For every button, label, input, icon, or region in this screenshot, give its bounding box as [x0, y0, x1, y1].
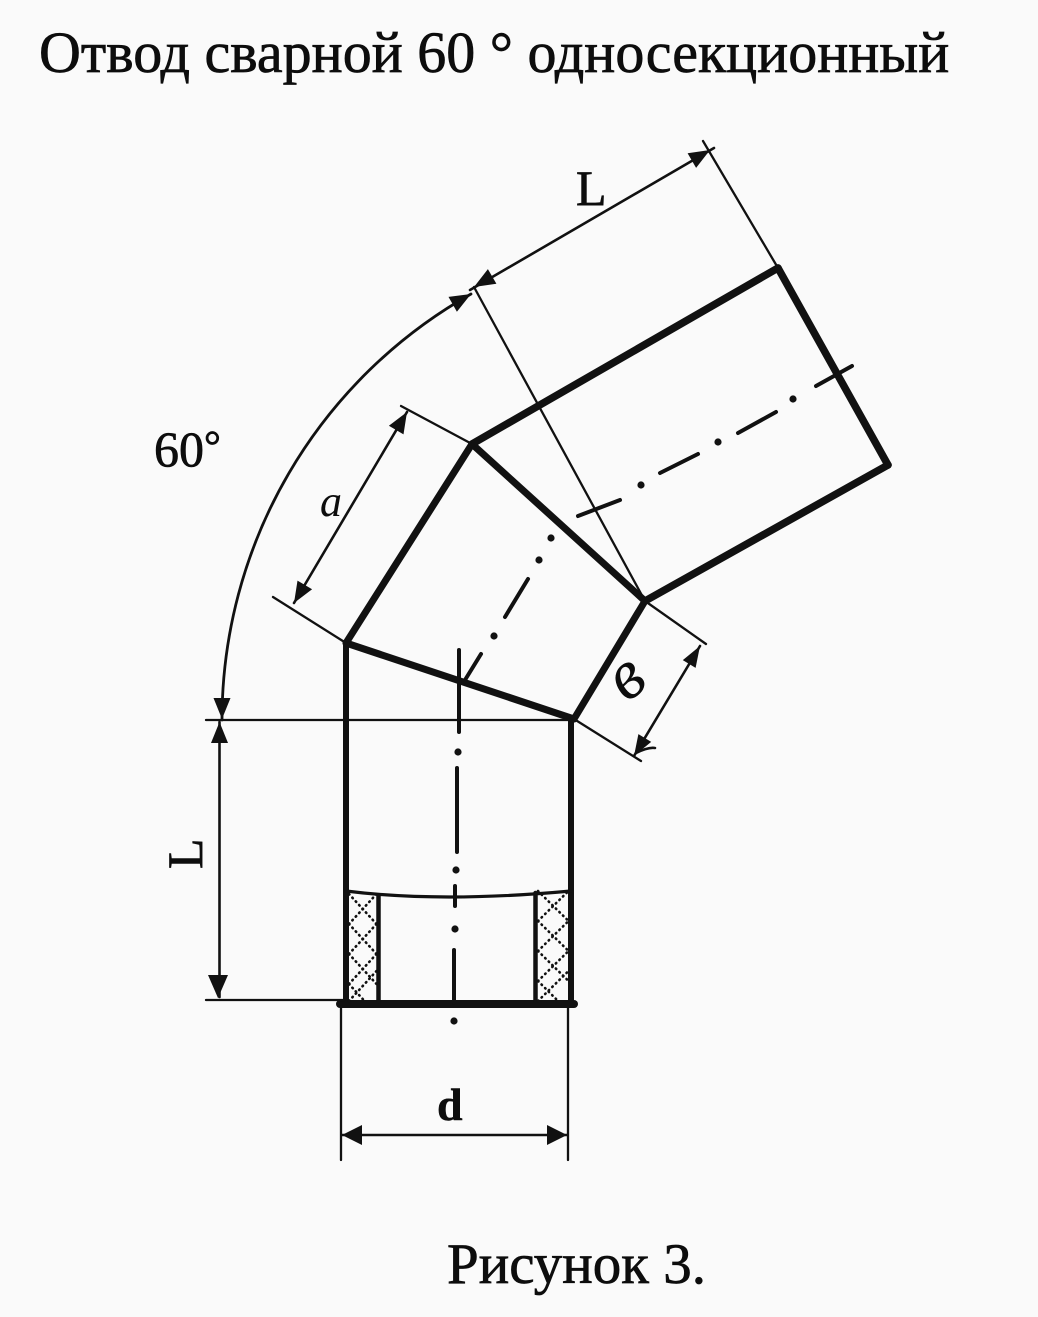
- svg-text:Отвод сварной 60 ° односекцион: Отвод сварной 60 ° односекционный: [39, 20, 949, 85]
- svg-text:60°: 60°: [154, 421, 221, 477]
- svg-text:L: L: [576, 160, 607, 216]
- svg-text:a: a: [320, 477, 342, 526]
- svg-text:d: d: [437, 1079, 463, 1130]
- svg-text:Рисунок 3.: Рисунок 3.: [447, 1233, 706, 1296]
- svg-text:L: L: [157, 838, 213, 869]
